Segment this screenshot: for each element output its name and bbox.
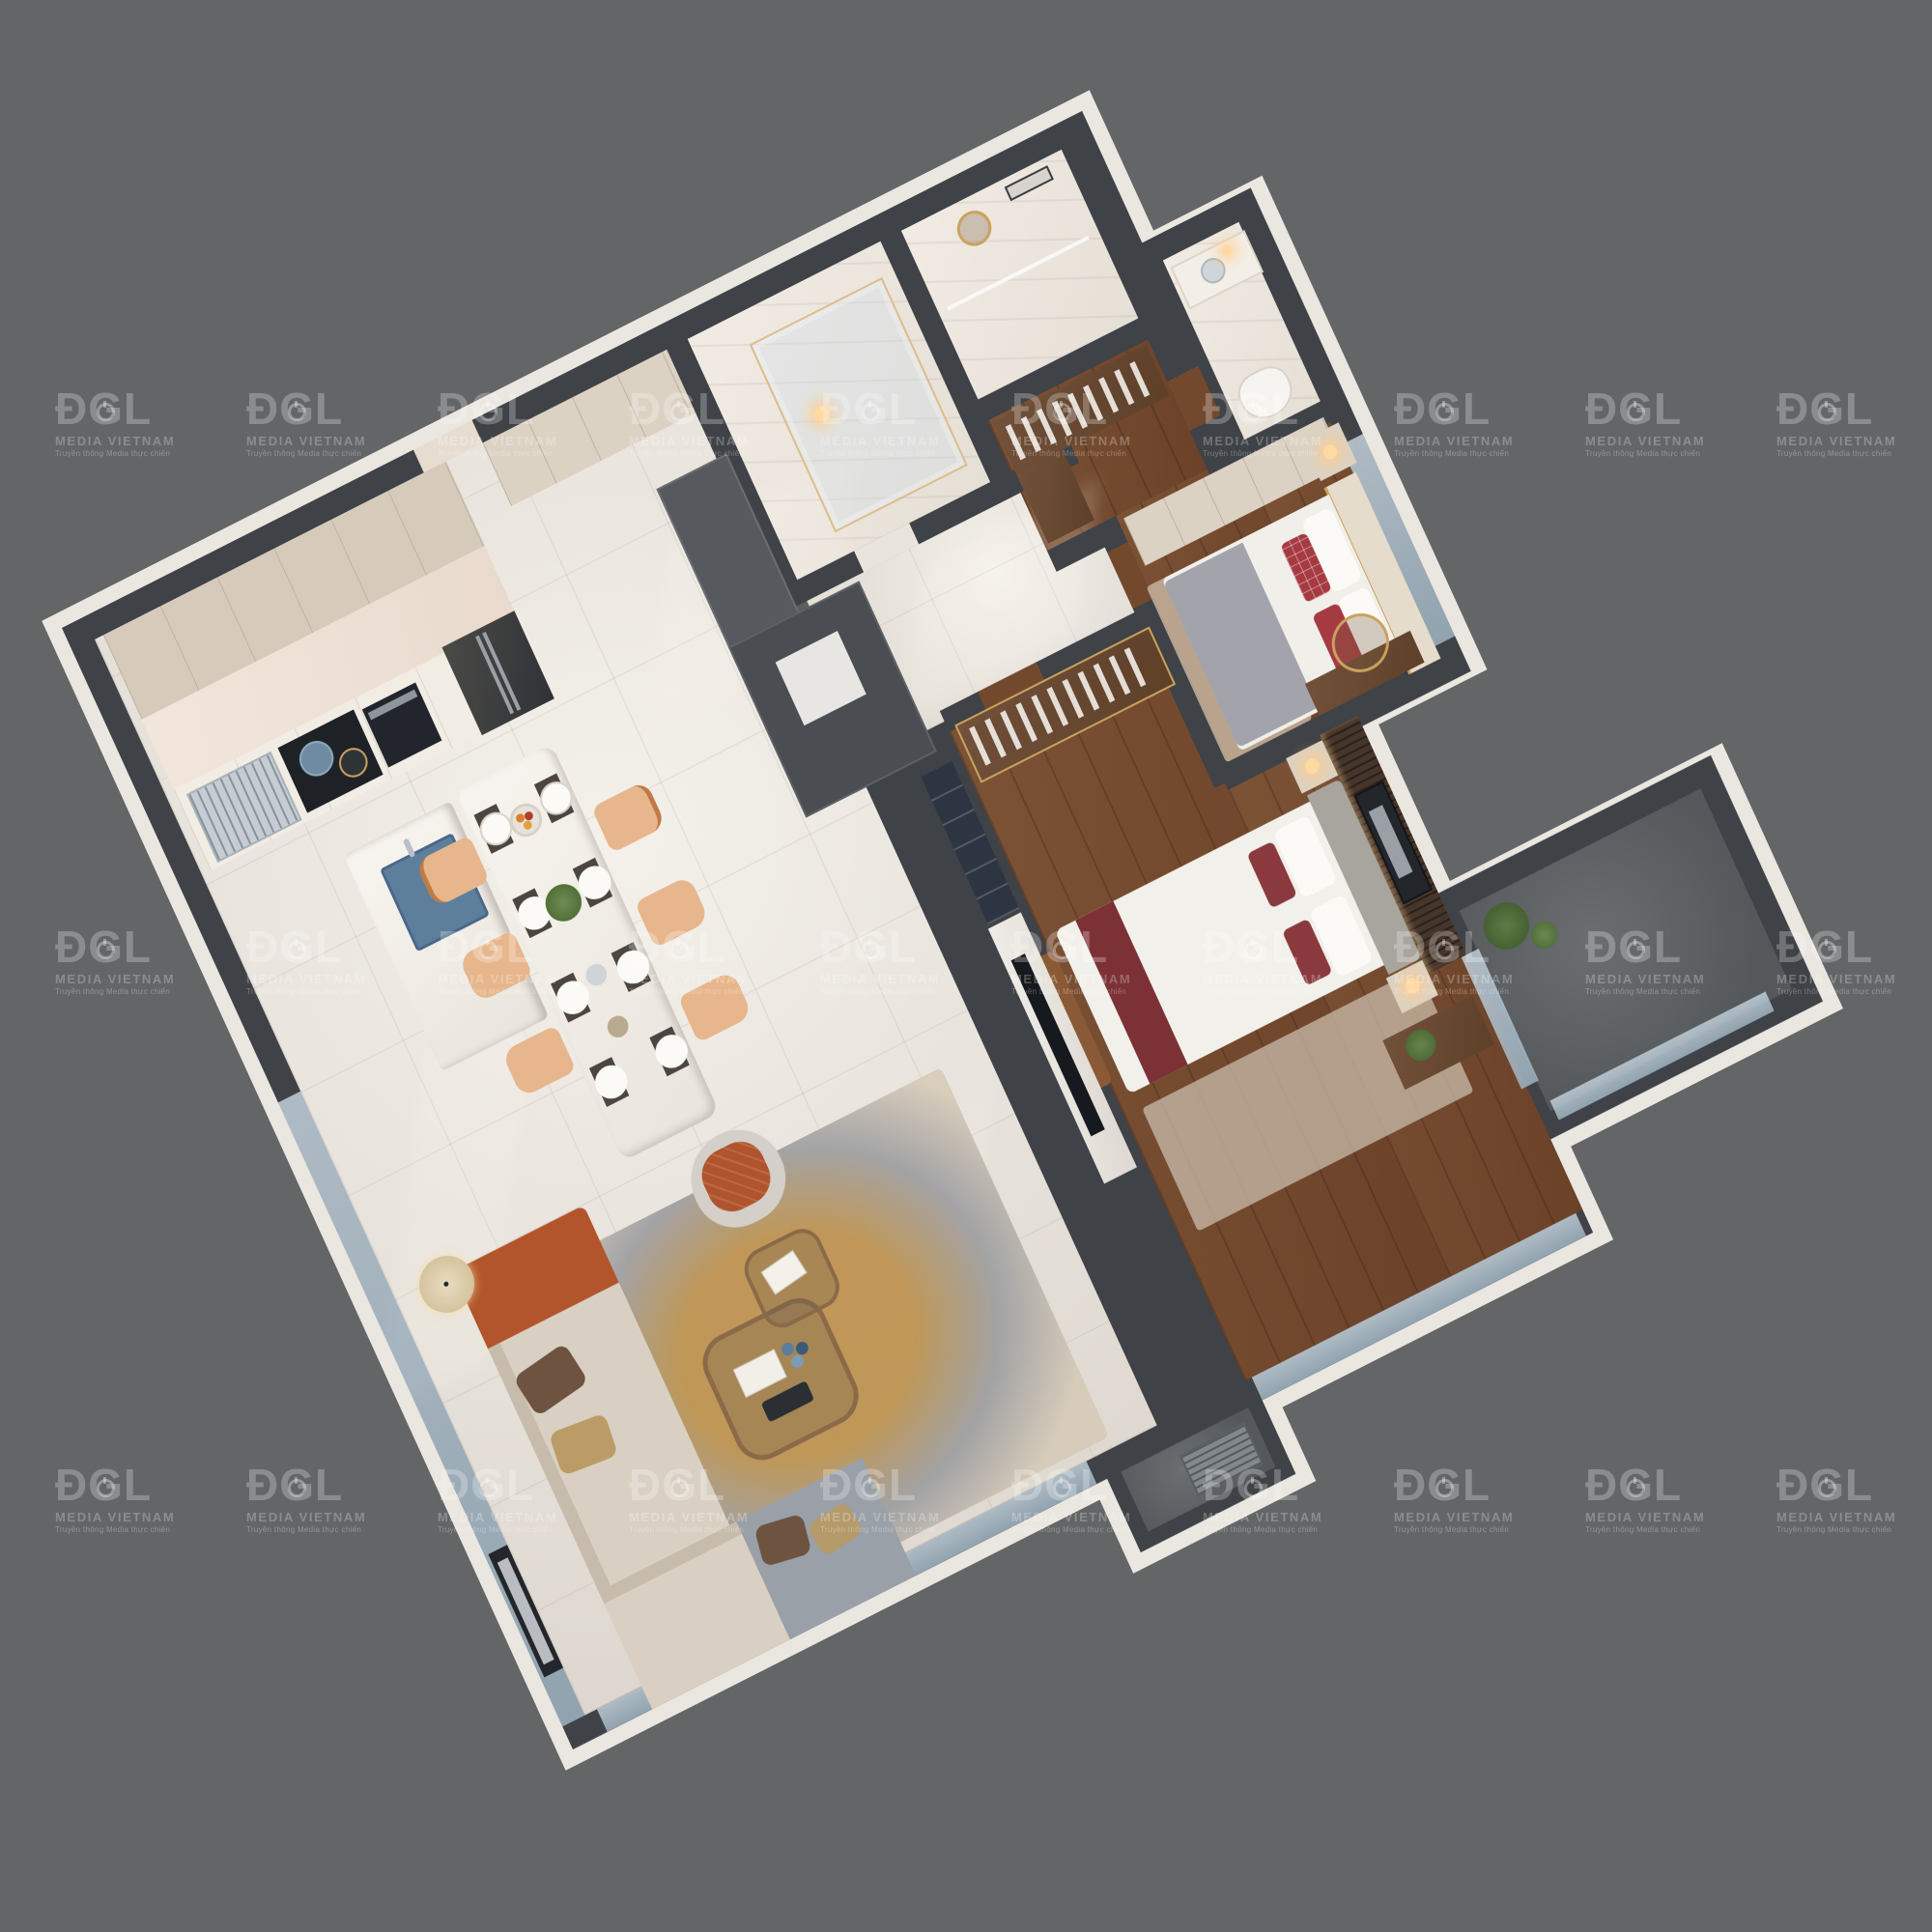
watermark-tagline: Truyền thông Media thực chiến [1203,450,1328,458]
watermark-tagline: Truyền thông Media thực chiến [629,1526,754,1534]
watermark: ĐGLMEDIA VIETNAMTruyền thông Media thực … [1011,386,1137,458]
watermark: ĐGLMEDIA VIETNAMTruyền thông Media thực … [1585,924,1711,996]
watermark-tagline: Truyền thông Media thực chiến [1203,988,1328,996]
watermark-tagline: Truyền thông Media thực chiến [820,1526,946,1534]
watermark-brand: MEDIA VIETNAM [246,435,372,447]
watermark-logo: ĐGL [1776,386,1902,431]
watermark-brand: MEDIA VIETNAM [1585,1511,1711,1523]
watermark: ĐGLMEDIA VIETNAMTruyền thông Media thực … [1776,1463,1902,1534]
watermark-tagline: Truyền thông Media thực chiến [820,450,946,458]
watermark-brand: MEDIA VIETNAM [1394,435,1520,447]
watermark-brand: MEDIA VIETNAM [438,435,563,447]
power-icon [670,1479,689,1497]
watermark-logo: ĐGL [1011,1463,1137,1507]
watermark-tagline: Truyền thông Media thực chiến [1585,450,1711,458]
watermark-tagline: Truyền thông Media thực chiến [55,450,181,458]
watermark-logo: ĐGL [1585,924,1711,969]
watermark-brand: MEDIA VIETNAM [820,1511,946,1523]
watermark-tagline: Truyền thông Media thực chiến [1776,450,1902,458]
watermark-logo: ĐGL [246,924,372,969]
power-icon [1627,403,1645,421]
watermark: ĐGLMEDIA VIETNAMTruyền thông Media thực … [1394,1463,1520,1534]
watermark: ĐGLMEDIA VIETNAMTruyền thông Media thực … [246,386,372,458]
watermark-brand: MEDIA VIETNAM [55,973,181,985]
watermark: ĐGLMEDIA VIETNAMTruyền thông Media thực … [1776,386,1902,458]
watermark: ĐGLMEDIA VIETNAMTruyền thông Media thực … [1203,386,1328,458]
watermark-logo: ĐGL [438,924,563,969]
watermark-tagline: Truyền thông Media thực chiến [1203,1526,1328,1534]
watermark-brand: MEDIA VIETNAM [1203,435,1328,447]
watermark: ĐGLMEDIA VIETNAMTruyền thông Media thực … [55,924,181,996]
watermark: ĐGLMEDIA VIETNAMTruyền thông Media thực … [1394,386,1520,458]
watermark-logo: ĐGL [1394,924,1520,969]
watermark-tagline: Truyền thông Media thực chiến [438,1526,563,1534]
watermark-logo: ĐGL [438,1463,563,1507]
watermark-logo: ĐGL [1776,1463,1902,1507]
watermark-logo: ĐGL [820,1463,946,1507]
watermark-logo: ĐGL [629,924,754,969]
watermark-brand: MEDIA VIETNAM [820,435,946,447]
watermark: ĐGLMEDIA VIETNAMTruyền thông Media thực … [1776,924,1902,996]
watermark-tagline: Truyền thông Media thực chiến [1011,450,1137,458]
watermark-tagline: Truyền thông Media thực chiến [1011,988,1137,996]
watermark-tagline: Truyền thông Media thực chiến [629,988,754,996]
watermark-tagline: Truyền thông Media thực chiến [246,1526,372,1534]
power-icon [1053,941,1071,959]
watermark: ĐGLMEDIA VIETNAMTruyền thông Media thực … [820,1463,946,1534]
watermark-brand: MEDIA VIETNAM [1776,973,1902,985]
watermark: ĐGLMEDIA VIETNAMTruyền thông Media thực … [1011,924,1137,996]
power-icon [1435,403,1454,421]
watermark-brand: MEDIA VIETNAM [1776,435,1902,447]
power-icon [97,941,115,959]
watermark-tagline: Truyền thông Media thực chiến [1394,1526,1520,1534]
watermark-tagline: Truyền thông Media thực chiến [1394,450,1520,458]
watermark-brand: MEDIA VIETNAM [629,973,754,985]
watermark-tagline: Truyền thông Media thực chiến [438,450,563,458]
watermark: ĐGLMEDIA VIETNAMTruyền thông Media thực … [246,924,372,996]
power-icon [97,403,115,421]
watermark-logo: ĐGL [820,924,946,969]
watermark-grid: ĐGLMEDIA VIETNAMTruyền thông Media thực … [0,0,1932,1932]
watermark-tagline: Truyền thông Media thực chiến [820,988,946,996]
watermark-brand: MEDIA VIETNAM [1203,973,1328,985]
watermark-logo: ĐGL [438,386,563,431]
watermark-brand: MEDIA VIETNAM [1011,435,1137,447]
watermark-logo: ĐGL [55,1463,181,1507]
power-icon [1053,403,1071,421]
watermark: ĐGLMEDIA VIETNAMTruyền thông Media thực … [1011,1463,1137,1534]
power-icon [97,1479,115,1497]
power-icon [1435,941,1454,959]
watermark-logo: ĐGL [1203,386,1328,431]
watermark-brand: MEDIA VIETNAM [820,973,946,985]
watermark-logo: ĐGL [629,1463,754,1507]
watermark: ĐGLMEDIA VIETNAMTruyền thông Media thực … [438,386,563,458]
watermark-brand: MEDIA VIETNAM [1585,435,1711,447]
watermark-tagline: Truyền thông Media thực chiến [1011,1526,1137,1534]
power-icon [862,1479,880,1497]
power-icon [288,1479,306,1497]
power-icon [670,403,689,421]
watermark-tagline: Truyền thông Media thực chiến [438,988,563,996]
watermark: ĐGLMEDIA VIETNAMTruyền thông Media thực … [55,1463,181,1534]
power-icon [1627,941,1645,959]
power-icon [1244,403,1263,421]
watermark: ĐGLMEDIA VIETNAMTruyền thông Media thực … [438,924,563,996]
watermark-brand: MEDIA VIETNAM [1585,973,1711,985]
watermark: ĐGLMEDIA VIETNAMTruyền thông Media thực … [246,1463,372,1534]
watermark-logo: ĐGL [55,386,181,431]
watermark-logo: ĐGL [55,924,181,969]
watermark: ĐGLMEDIA VIETNAMTruyền thông Media thực … [629,924,754,996]
watermark: ĐGLMEDIA VIETNAMTruyền thông Media thực … [629,386,754,458]
power-icon [862,403,880,421]
watermark-tagline: Truyền thông Media thực chiến [55,988,181,996]
watermark: ĐGLMEDIA VIETNAMTruyền thông Media thực … [1585,386,1711,458]
watermark-brand: MEDIA VIETNAM [55,435,181,447]
power-icon [1053,1479,1071,1497]
watermark: ĐGLMEDIA VIETNAMTruyền thông Media thực … [1585,1463,1711,1534]
watermark: ĐGLMEDIA VIETNAMTruyền thông Media thực … [438,1463,563,1534]
watermark-tagline: Truyền thông Media thực chiến [629,450,754,458]
power-icon [1244,1479,1263,1497]
watermark-brand: MEDIA VIETNAM [1011,973,1137,985]
watermark-brand: MEDIA VIETNAM [629,1511,754,1523]
watermark-brand: MEDIA VIETNAM [1394,973,1520,985]
scene: ĐGLMEDIA VIETNAMTruyền thông Media thực … [0,0,1932,1932]
watermark: ĐGLMEDIA VIETNAMTruyền thông Media thực … [1394,924,1520,996]
watermark-brand: MEDIA VIETNAM [1394,1511,1520,1523]
watermark-logo: ĐGL [629,386,754,431]
watermark-logo: ĐGL [246,1463,372,1507]
watermark: ĐGLMEDIA VIETNAMTruyền thông Media thực … [1203,924,1328,996]
watermark-brand: MEDIA VIETNAM [246,973,372,985]
power-icon [479,403,497,421]
watermark-logo: ĐGL [1776,924,1902,969]
watermark-brand: MEDIA VIETNAM [629,435,754,447]
watermark: ĐGLMEDIA VIETNAMTruyền thông Media thực … [1203,1463,1328,1534]
watermark: ĐGLMEDIA VIETNAMTruyền thông Media thực … [629,1463,754,1534]
watermark-tagline: Truyền thông Media thực chiến [1585,1526,1711,1534]
watermark-logo: ĐGL [1585,386,1711,431]
watermark-tagline: Truyền thông Media thực chiến [1776,988,1902,996]
watermark-logo: ĐGL [1203,1463,1328,1507]
watermark-tagline: Truyền thông Media thực chiến [1585,988,1711,996]
watermark-logo: ĐGL [1394,1463,1520,1507]
power-icon [479,941,497,959]
watermark-brand: MEDIA VIETNAM [1776,1511,1902,1523]
watermark-brand: MEDIA VIETNAM [1011,1511,1137,1523]
watermark-brand: MEDIA VIETNAM [1203,1511,1328,1523]
watermark-logo: ĐGL [1394,386,1520,431]
watermark-logo: ĐGL [1585,1463,1711,1507]
watermark: ĐGLMEDIA VIETNAMTruyền thông Media thực … [55,386,181,458]
watermark: ĐGLMEDIA VIETNAMTruyền thông Media thực … [820,924,946,996]
power-icon [288,941,306,959]
power-icon [1244,941,1263,959]
power-icon [1818,403,1836,421]
power-icon [670,941,689,959]
power-icon [288,403,306,421]
power-icon [1818,1479,1836,1497]
watermark-tagline: Truyền thông Media thực chiến [246,450,372,458]
watermark-logo: ĐGL [1011,924,1137,969]
power-icon [1818,941,1836,959]
power-icon [1627,1479,1645,1497]
watermark-tagline: Truyền thông Media thực chiến [246,988,372,996]
watermark: ĐGLMEDIA VIETNAMTruyền thông Media thực … [820,386,946,458]
watermark-tagline: Truyền thông Media thực chiến [1394,988,1520,996]
watermark-tagline: Truyền thông Media thực chiến [1776,1526,1902,1534]
watermark-logo: ĐGL [1011,386,1137,431]
watermark-logo: ĐGL [820,386,946,431]
watermark-logo: ĐGL [246,386,372,431]
watermark-tagline: Truyền thông Media thực chiến [55,1526,181,1534]
power-icon [1435,1479,1454,1497]
power-icon [862,941,880,959]
watermark-logo: ĐGL [1203,924,1328,969]
power-icon [479,1479,497,1497]
watermark-brand: MEDIA VIETNAM [438,1511,563,1523]
watermark-brand: MEDIA VIETNAM [55,1511,181,1523]
watermark-brand: MEDIA VIETNAM [438,973,563,985]
watermark-brand: MEDIA VIETNAM [246,1511,372,1523]
